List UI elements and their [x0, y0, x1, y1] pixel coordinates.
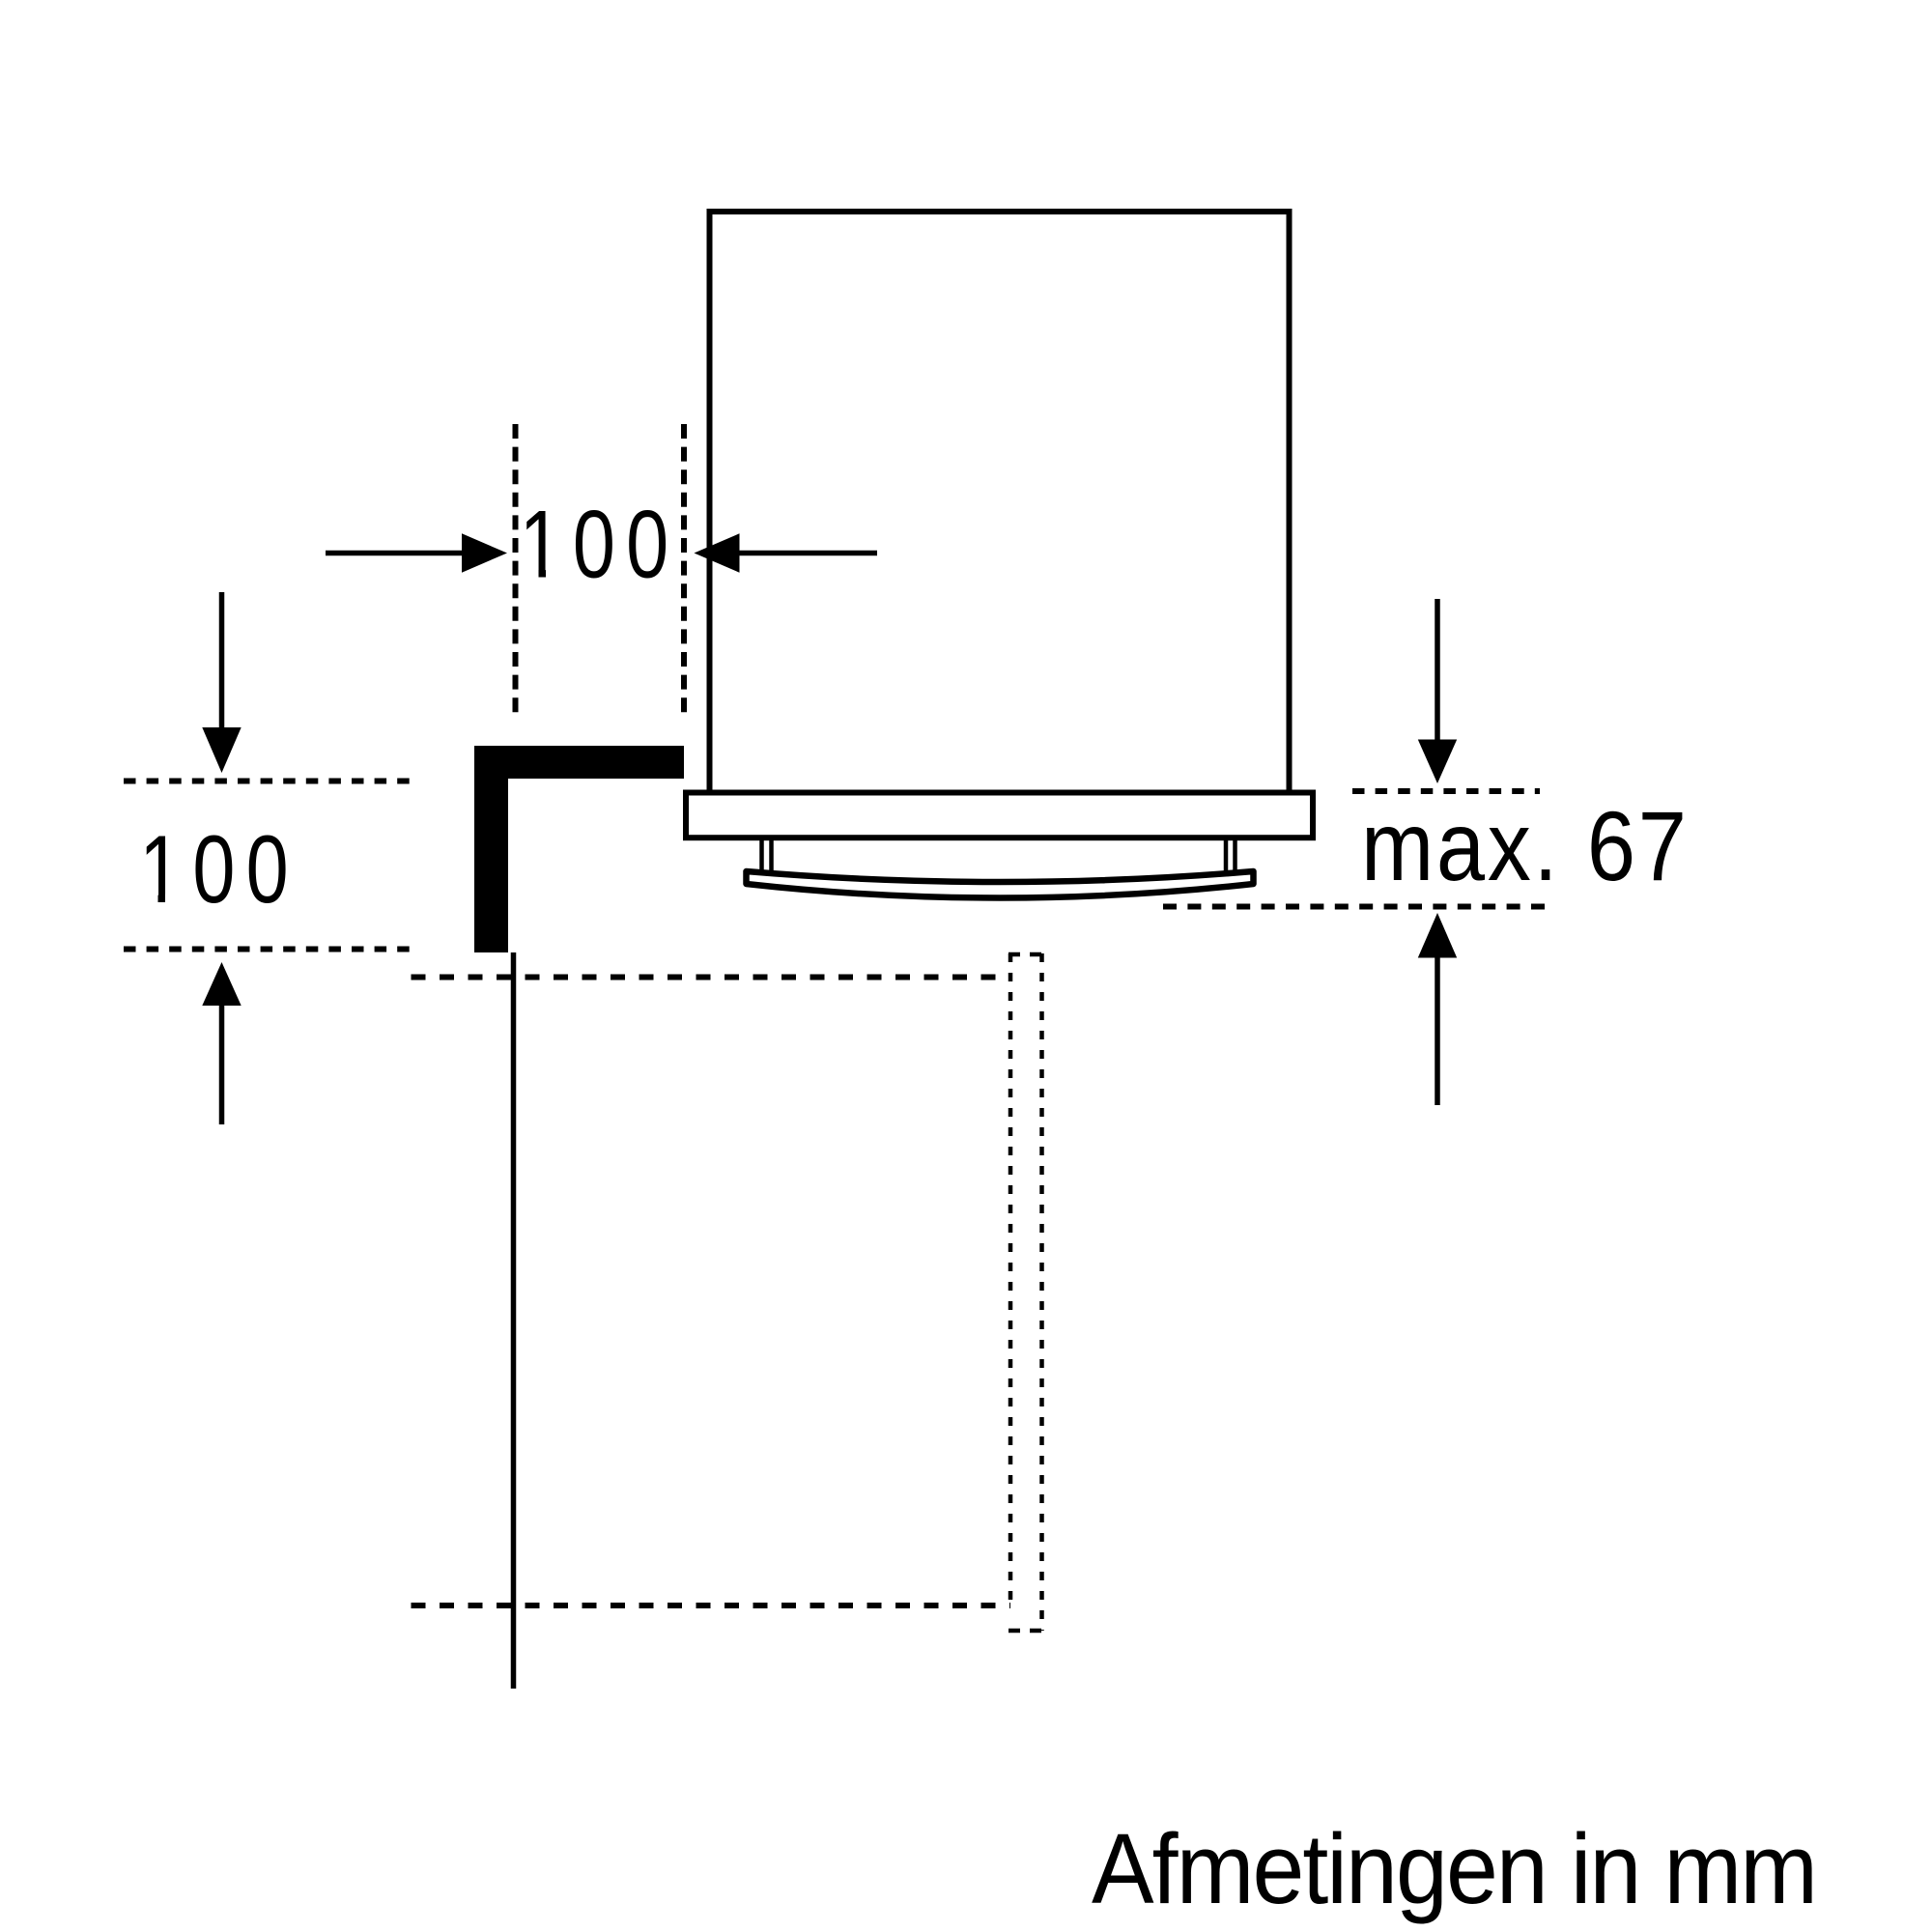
svg-text:max. 67: max. 67 [1361, 792, 1690, 901]
svg-text:Afmetingen in mm: Afmetingen in mm [1092, 1814, 1816, 1924]
svg-text:100: 100 [520, 491, 680, 597]
svg-text:100: 100 [139, 816, 299, 923]
